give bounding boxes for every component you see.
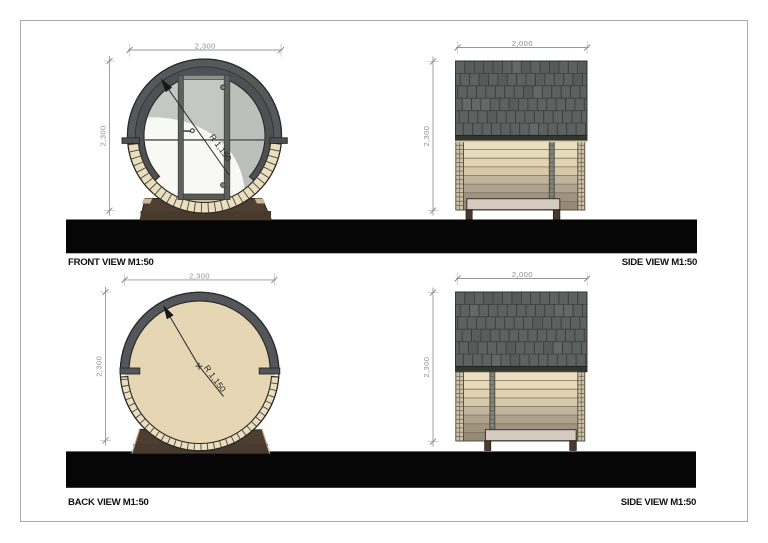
svg-text:SIDE VIEW M1:50: SIDE VIEW M1:50 bbox=[622, 257, 697, 268]
svg-text:SIDE VIEW M1:50: SIDE VIEW M1:50 bbox=[621, 497, 696, 508]
svg-text:2,300: 2,300 bbox=[422, 126, 431, 147]
svg-text:2,300: 2,300 bbox=[189, 272, 210, 281]
svg-text:2,300: 2,300 bbox=[95, 356, 104, 377]
svg-text:2,000: 2,000 bbox=[512, 39, 533, 48]
svg-text:2,300: 2,300 bbox=[99, 125, 108, 146]
svg-text:2,300: 2,300 bbox=[195, 42, 216, 51]
svg-text:2,300: 2,300 bbox=[422, 357, 431, 378]
svg-text:FRONT VIEW M1:50: FRONT VIEW M1:50 bbox=[68, 257, 154, 268]
svg-text:BACK VIEW M1:50: BACK VIEW M1:50 bbox=[68, 497, 149, 508]
svg-text:2,000: 2,000 bbox=[512, 270, 533, 279]
